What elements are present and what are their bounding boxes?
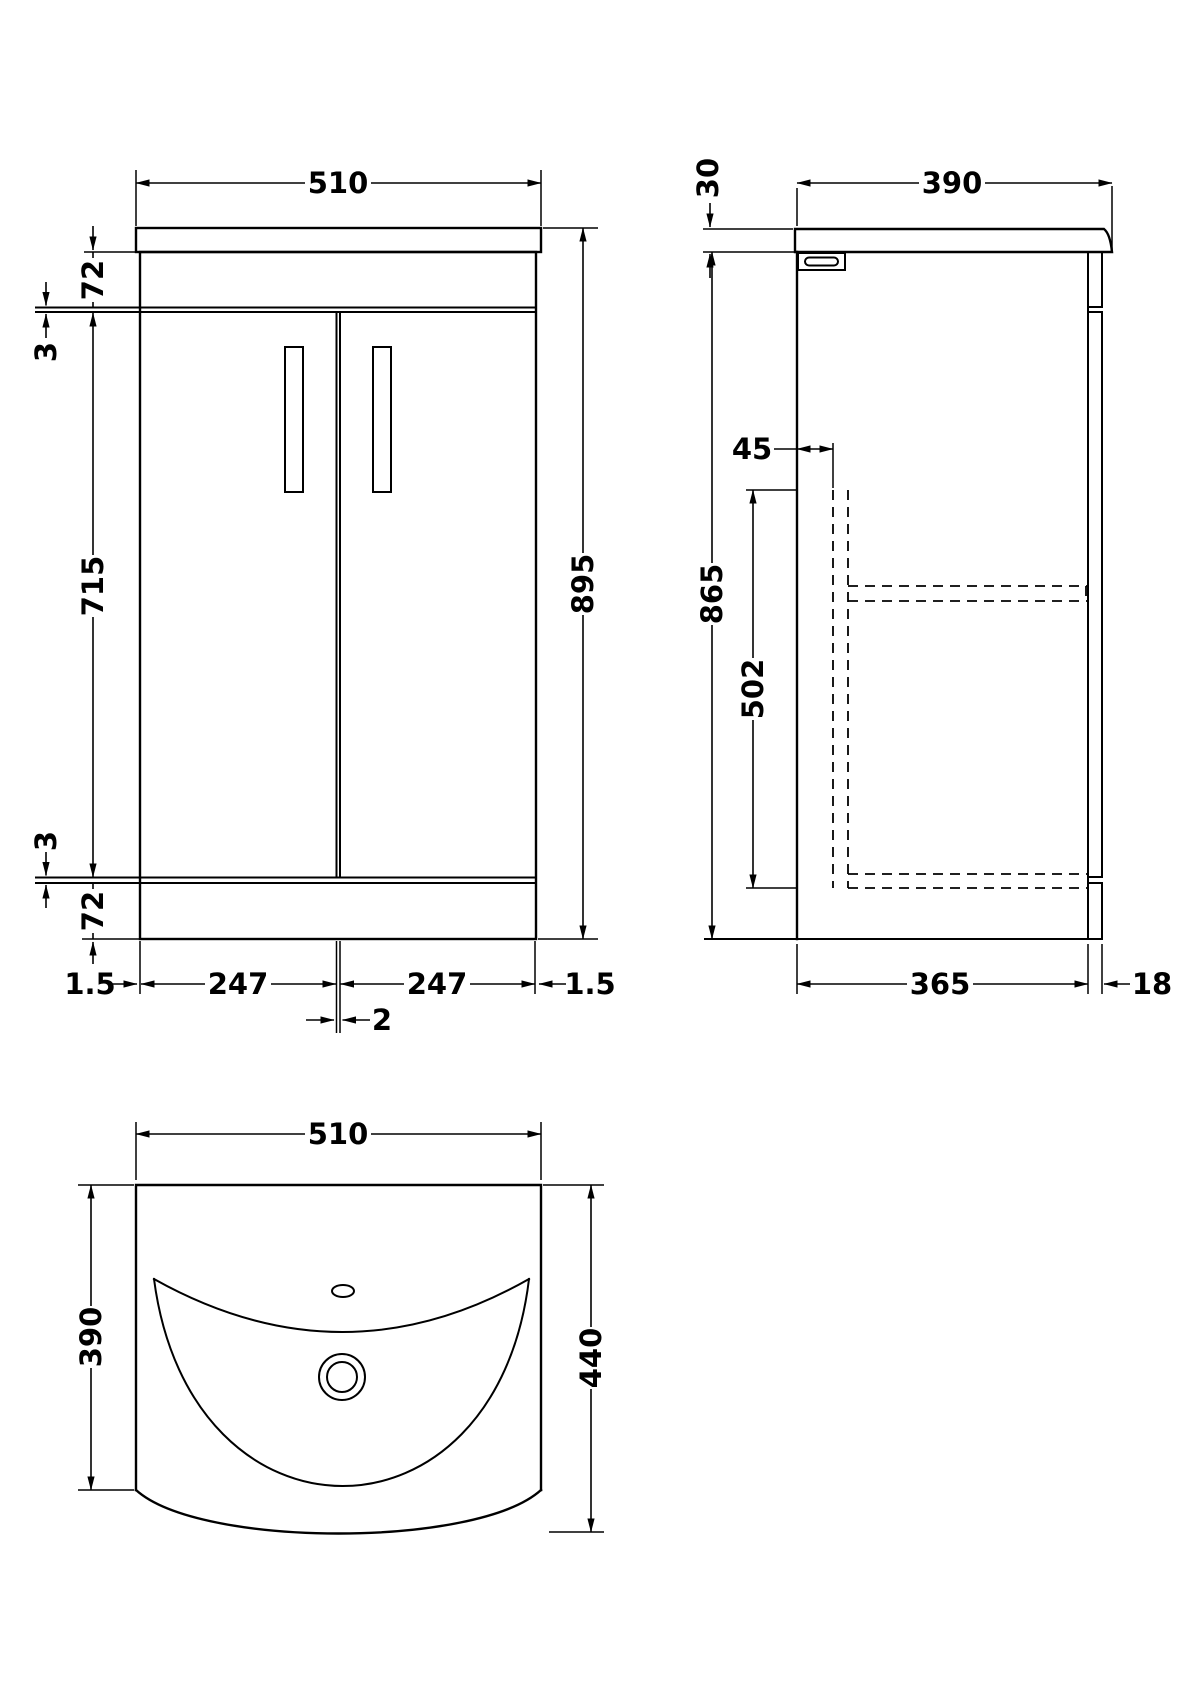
side-view: 30 390 45 865 502 xyxy=(691,158,1172,1001)
side-back-inset-label: 45 xyxy=(732,432,772,466)
front-right-edge-label: 1.5 xyxy=(564,967,615,1001)
plan-overall-depth-label: 440 xyxy=(574,1328,608,1389)
dim-front-bottom-row: 1.5 247 247 1.5 xyxy=(64,941,615,1033)
front-cabinet-body xyxy=(140,252,536,939)
dim-front-overall-height: 895 xyxy=(538,228,600,939)
vanity-dimension-drawing: 510 72 3 715 3 xyxy=(0,0,1200,1698)
dim-plan-width: 510 xyxy=(136,1117,541,1180)
front-top-gap-label: 3 xyxy=(29,342,63,362)
plan-basin-bowl xyxy=(154,1279,529,1486)
side-worktop-thickness-label: 30 xyxy=(691,158,725,198)
dim-front-plinth: 72 xyxy=(76,883,140,964)
front-door-height-label: 715 xyxy=(76,556,110,617)
side-depth-label: 390 xyxy=(922,166,983,200)
front-door-gap-label: 2 xyxy=(372,1003,392,1037)
front-top-rail-label: 72 xyxy=(76,260,110,300)
front-worktop xyxy=(136,228,541,252)
front-left-door-handle xyxy=(285,347,303,492)
front-right-door-width-label: 247 xyxy=(407,967,468,1001)
plan-tap-hole xyxy=(332,1285,354,1297)
dim-side-back-inset: 45 xyxy=(732,432,833,488)
dim-plan-overall-depth: 440 xyxy=(543,1185,608,1532)
dim-side-depth: 390 xyxy=(797,166,1112,250)
dim-front-door-height: 715 xyxy=(76,313,110,877)
dim-front-door-gap: 2 xyxy=(306,1003,392,1037)
side-internal-height-label: 502 xyxy=(736,659,770,720)
plan-worktop-outline xyxy=(136,1185,541,1490)
dim-side-cabinet-height: 865 xyxy=(695,252,729,939)
front-view: 510 72 3 715 3 xyxy=(29,166,616,1037)
front-bottom-gap-label: 3 xyxy=(29,831,63,851)
side-worktop xyxy=(795,229,1112,252)
front-right-door-handle xyxy=(373,347,391,492)
dim-front-width: 510 xyxy=(136,166,541,226)
dim-front-top-rail: 72 xyxy=(76,226,138,307)
dim-side-bottom-row: 365 18 xyxy=(797,944,1172,1001)
side-overflow-slot xyxy=(805,258,838,266)
front-left-edge-label: 1.5 xyxy=(64,967,115,1001)
plan-basin-depth-label: 390 xyxy=(74,1307,108,1368)
side-cabinet-height-label: 865 xyxy=(695,564,729,625)
dim-front-bottom-gap: 3 xyxy=(29,831,63,908)
front-left-door-width-label: 247 xyxy=(208,967,269,1001)
plan-waste-inner xyxy=(327,1362,357,1392)
dim-front-top-gap: 3 xyxy=(29,282,63,362)
plan-basin-back-edge xyxy=(154,1279,529,1332)
side-door-thickness-label: 18 xyxy=(1132,967,1172,1001)
front-width-label: 510 xyxy=(308,166,369,200)
plan-width-label: 510 xyxy=(308,1117,369,1151)
dim-plan-basin-depth: 390 xyxy=(74,1185,134,1490)
front-overall-height-label: 895 xyxy=(566,554,600,615)
plan-view: 510 390 440 xyxy=(74,1117,608,1534)
technical-drawing-page: 510 72 3 715 3 xyxy=(0,0,1200,1698)
side-body-depth-label: 365 xyxy=(910,967,971,1001)
plan-waste-outer xyxy=(319,1354,365,1400)
front-plinth-label: 72 xyxy=(76,891,110,931)
dim-side-worktop-thickness: 30 xyxy=(691,158,795,278)
plan-worktop-front-curve xyxy=(136,1490,541,1534)
dim-side-internal-height: 502 xyxy=(736,490,797,888)
